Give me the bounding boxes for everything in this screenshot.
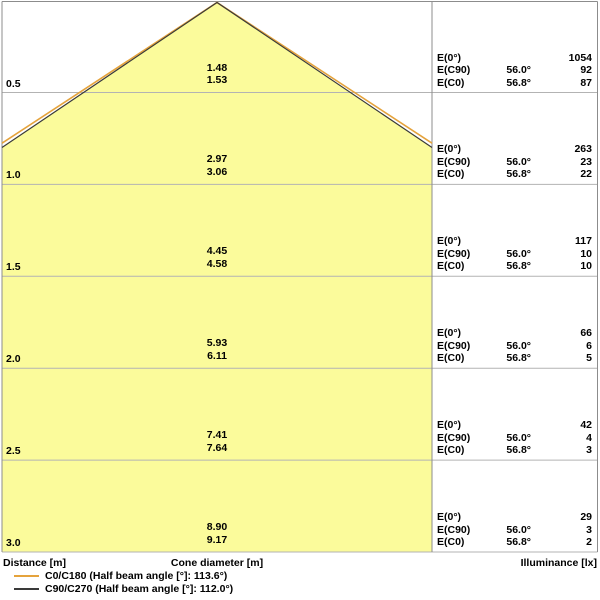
cone-diameter-c90-value: 7.41 — [147, 429, 287, 442]
beam-angle-value — [497, 143, 531, 156]
illuminance-value: 10 — [531, 260, 592, 273]
cone-diameter-values-1.0: 2.973.06 — [147, 153, 287, 178]
cone-diameter-c0-value: 9.17 — [147, 534, 287, 547]
ec90-row: E(C90)56.0°10 — [432, 248, 598, 261]
legend-label-c90-c270: C90/C270 (Half beam angle [°]: 112.0°) — [45, 583, 233, 596]
ec0-row: E(C0)56.8°87 — [432, 77, 598, 90]
illuminance-value: 10 — [531, 248, 592, 261]
measure-label: E(C0) — [437, 352, 497, 365]
ec0-row: E(C0)56.8°2 — [432, 536, 598, 549]
illuminance-value: 87 — [531, 77, 592, 90]
cone-diameter-c0-value: 7.64 — [147, 442, 287, 455]
cone-diameter-values-0.5: 1.481.53 — [147, 62, 287, 87]
distance-label-1.0: 1.0 — [6, 169, 21, 182]
beam-angle-value: 56.8° — [497, 352, 531, 365]
cone-diameter-c90-value: 2.97 — [147, 153, 287, 166]
illuminance-table-block-0.5: E(0°)1054E(C90)56.0°92E(C0)56.8°87 — [432, 52, 598, 90]
legend-item-c90-c270: C90/C270 (Half beam angle [°]: 112.0°) — [14, 583, 233, 596]
distance-label-2.0: 2.0 — [6, 353, 21, 366]
beam-angle-value: 56.0° — [497, 340, 531, 353]
cone-diameter-values-3.0: 8.909.17 — [147, 521, 287, 546]
beam-angle-value: 56.0° — [497, 156, 531, 169]
illuminance-value: 29 — [531, 511, 592, 524]
beam-angle-value — [497, 327, 531, 340]
beam-angle-value — [497, 511, 531, 524]
cone-diameter-c90-value: 4.45 — [147, 245, 287, 258]
distance-label-0.5: 0.5 — [6, 78, 21, 91]
measure-label: E(C0) — [437, 444, 497, 457]
c0-c180-line-swatch — [14, 575, 39, 577]
cone-diameter-c90-value: 1.48 — [147, 62, 287, 75]
distance-label-1.5: 1.5 — [6, 261, 21, 274]
illuminance-table-block-1.0: E(0°)263E(C90)56.0°23E(C0)56.8°22 — [432, 143, 598, 181]
e0-row: E(0°)66 — [432, 327, 598, 340]
beam-angle-value — [497, 52, 531, 65]
beam-angle-value: 56.0° — [497, 432, 531, 445]
cone-diameter-c0-value: 3.06 — [147, 166, 287, 179]
measure-label: E(0°) — [437, 511, 497, 524]
measure-label: E(C0) — [437, 77, 497, 90]
beam-angle-value: 56.0° — [497, 524, 531, 537]
measure-label: E(0°) — [437, 52, 497, 65]
illuminance-axis-label: Illuminance [lx] — [521, 557, 597, 569]
ec0-row: E(C0)56.8°5 — [432, 352, 598, 365]
ec90-row: E(C90)56.0°92 — [432, 64, 598, 77]
ec0-row: E(C0)56.8°10 — [432, 260, 598, 273]
measure-label: E(C90) — [437, 432, 497, 445]
cone-diameter-values-2.5: 7.417.64 — [147, 429, 287, 454]
measure-label: E(C90) — [437, 248, 497, 261]
measure-label: E(C90) — [437, 524, 497, 537]
ec0-row: E(C0)56.8°22 — [432, 168, 598, 181]
measure-label: E(C90) — [437, 156, 497, 169]
legend-item-c0-c180: C0/C180 (Half beam angle [°]: 113.6°) — [14, 570, 233, 583]
cone-diameter-values-1.5: 4.454.58 — [147, 245, 287, 270]
e0-row: E(0°)29 — [432, 511, 598, 524]
beam-angle-value: 56.8° — [497, 168, 531, 181]
illuminance-value: 117 — [531, 235, 592, 248]
cone-diameter-c0-value: 1.53 — [147, 74, 287, 87]
beam-angle-value — [497, 235, 531, 248]
ec90-row: E(C90)56.0°3 — [432, 524, 598, 537]
measure-label: E(C0) — [437, 168, 497, 181]
measure-label: E(C0) — [437, 260, 497, 273]
cone-diameter-c0-value: 4.58 — [147, 258, 287, 271]
e0-row: E(0°)263 — [432, 143, 598, 156]
cone-diameter-axis-label: Cone diameter [m] — [0, 557, 434, 569]
cone-diagram-canvas — [0, 0, 600, 600]
measure-label: E(0°) — [437, 327, 497, 340]
ec90-row: E(C90)56.0°6 — [432, 340, 598, 353]
cone-diameter-c0-value: 6.11 — [147, 350, 287, 363]
beam-angle-value: 56.0° — [497, 248, 531, 261]
measure-label: E(C0) — [437, 536, 497, 549]
c90-c270-line-swatch — [14, 588, 39, 590]
photometric-cone-diagram: 0.51.481.53E(0°)1054E(C90)56.0°92E(C0)56… — [0, 0, 600, 600]
measure-label: E(C90) — [437, 340, 497, 353]
cone-diameter-c90-value: 5.93 — [147, 337, 287, 350]
illuminance-value: 22 — [531, 168, 592, 181]
illuminance-value: 5 — [531, 352, 592, 365]
beam-angle-value — [497, 419, 531, 432]
distance-label-2.5: 2.5 — [6, 445, 21, 458]
illuminance-value: 2 — [531, 536, 592, 549]
beam-angle-value: 56.8° — [497, 536, 531, 549]
beam-angle-value: 56.8° — [497, 77, 531, 90]
illuminance-value: 4 — [531, 432, 592, 445]
e0-row: E(0°)42 — [432, 419, 598, 432]
illuminance-value: 3 — [531, 524, 592, 537]
measure-label: E(0°) — [437, 235, 497, 248]
distance-label-3.0: 3.0 — [6, 537, 21, 550]
measure-label: E(0°) — [437, 143, 497, 156]
illuminance-value: 66 — [531, 327, 592, 340]
e0-row: E(0°)117 — [432, 235, 598, 248]
beam-angle-value: 56.0° — [497, 64, 531, 77]
ec90-row: E(C90)56.0°23 — [432, 156, 598, 169]
illuminance-table-block-2.0: E(0°)66E(C90)56.0°6E(C0)56.8°5 — [432, 327, 598, 365]
measure-label: E(0°) — [437, 419, 497, 432]
cone-diameter-c90-value: 8.90 — [147, 521, 287, 534]
ec0-row: E(C0)56.8°3 — [432, 444, 598, 457]
illuminance-value: 1054 — [531, 52, 592, 65]
illuminance-value: 263 — [531, 143, 592, 156]
illuminance-table-block-3.0: E(0°)29E(C90)56.0°3E(C0)56.8°2 — [432, 511, 598, 549]
illuminance-table-block-1.5: E(0°)117E(C90)56.0°10E(C0)56.8°10 — [432, 235, 598, 273]
e0-row: E(0°)1054 — [432, 52, 598, 65]
illuminance-value: 23 — [531, 156, 592, 169]
beam-angle-value: 56.8° — [497, 444, 531, 457]
illuminance-value: 42 — [531, 419, 592, 432]
measure-label: E(C90) — [437, 64, 497, 77]
illuminance-value: 6 — [531, 340, 592, 353]
ec90-row: E(C90)56.0°4 — [432, 432, 598, 445]
legend-label-c0-c180: C0/C180 (Half beam angle [°]: 113.6°) — [45, 570, 227, 583]
cone-diameter-values-2.0: 5.936.11 — [147, 337, 287, 362]
illuminance-value: 92 — [531, 64, 592, 77]
illuminance-table-block-2.5: E(0°)42E(C90)56.0°4E(C0)56.8°3 — [432, 419, 598, 457]
legend: C0/C180 (Half beam angle [°]: 113.6°) C9… — [14, 570, 233, 595]
illuminance-value: 3 — [531, 444, 592, 457]
beam-angle-value: 56.8° — [497, 260, 531, 273]
